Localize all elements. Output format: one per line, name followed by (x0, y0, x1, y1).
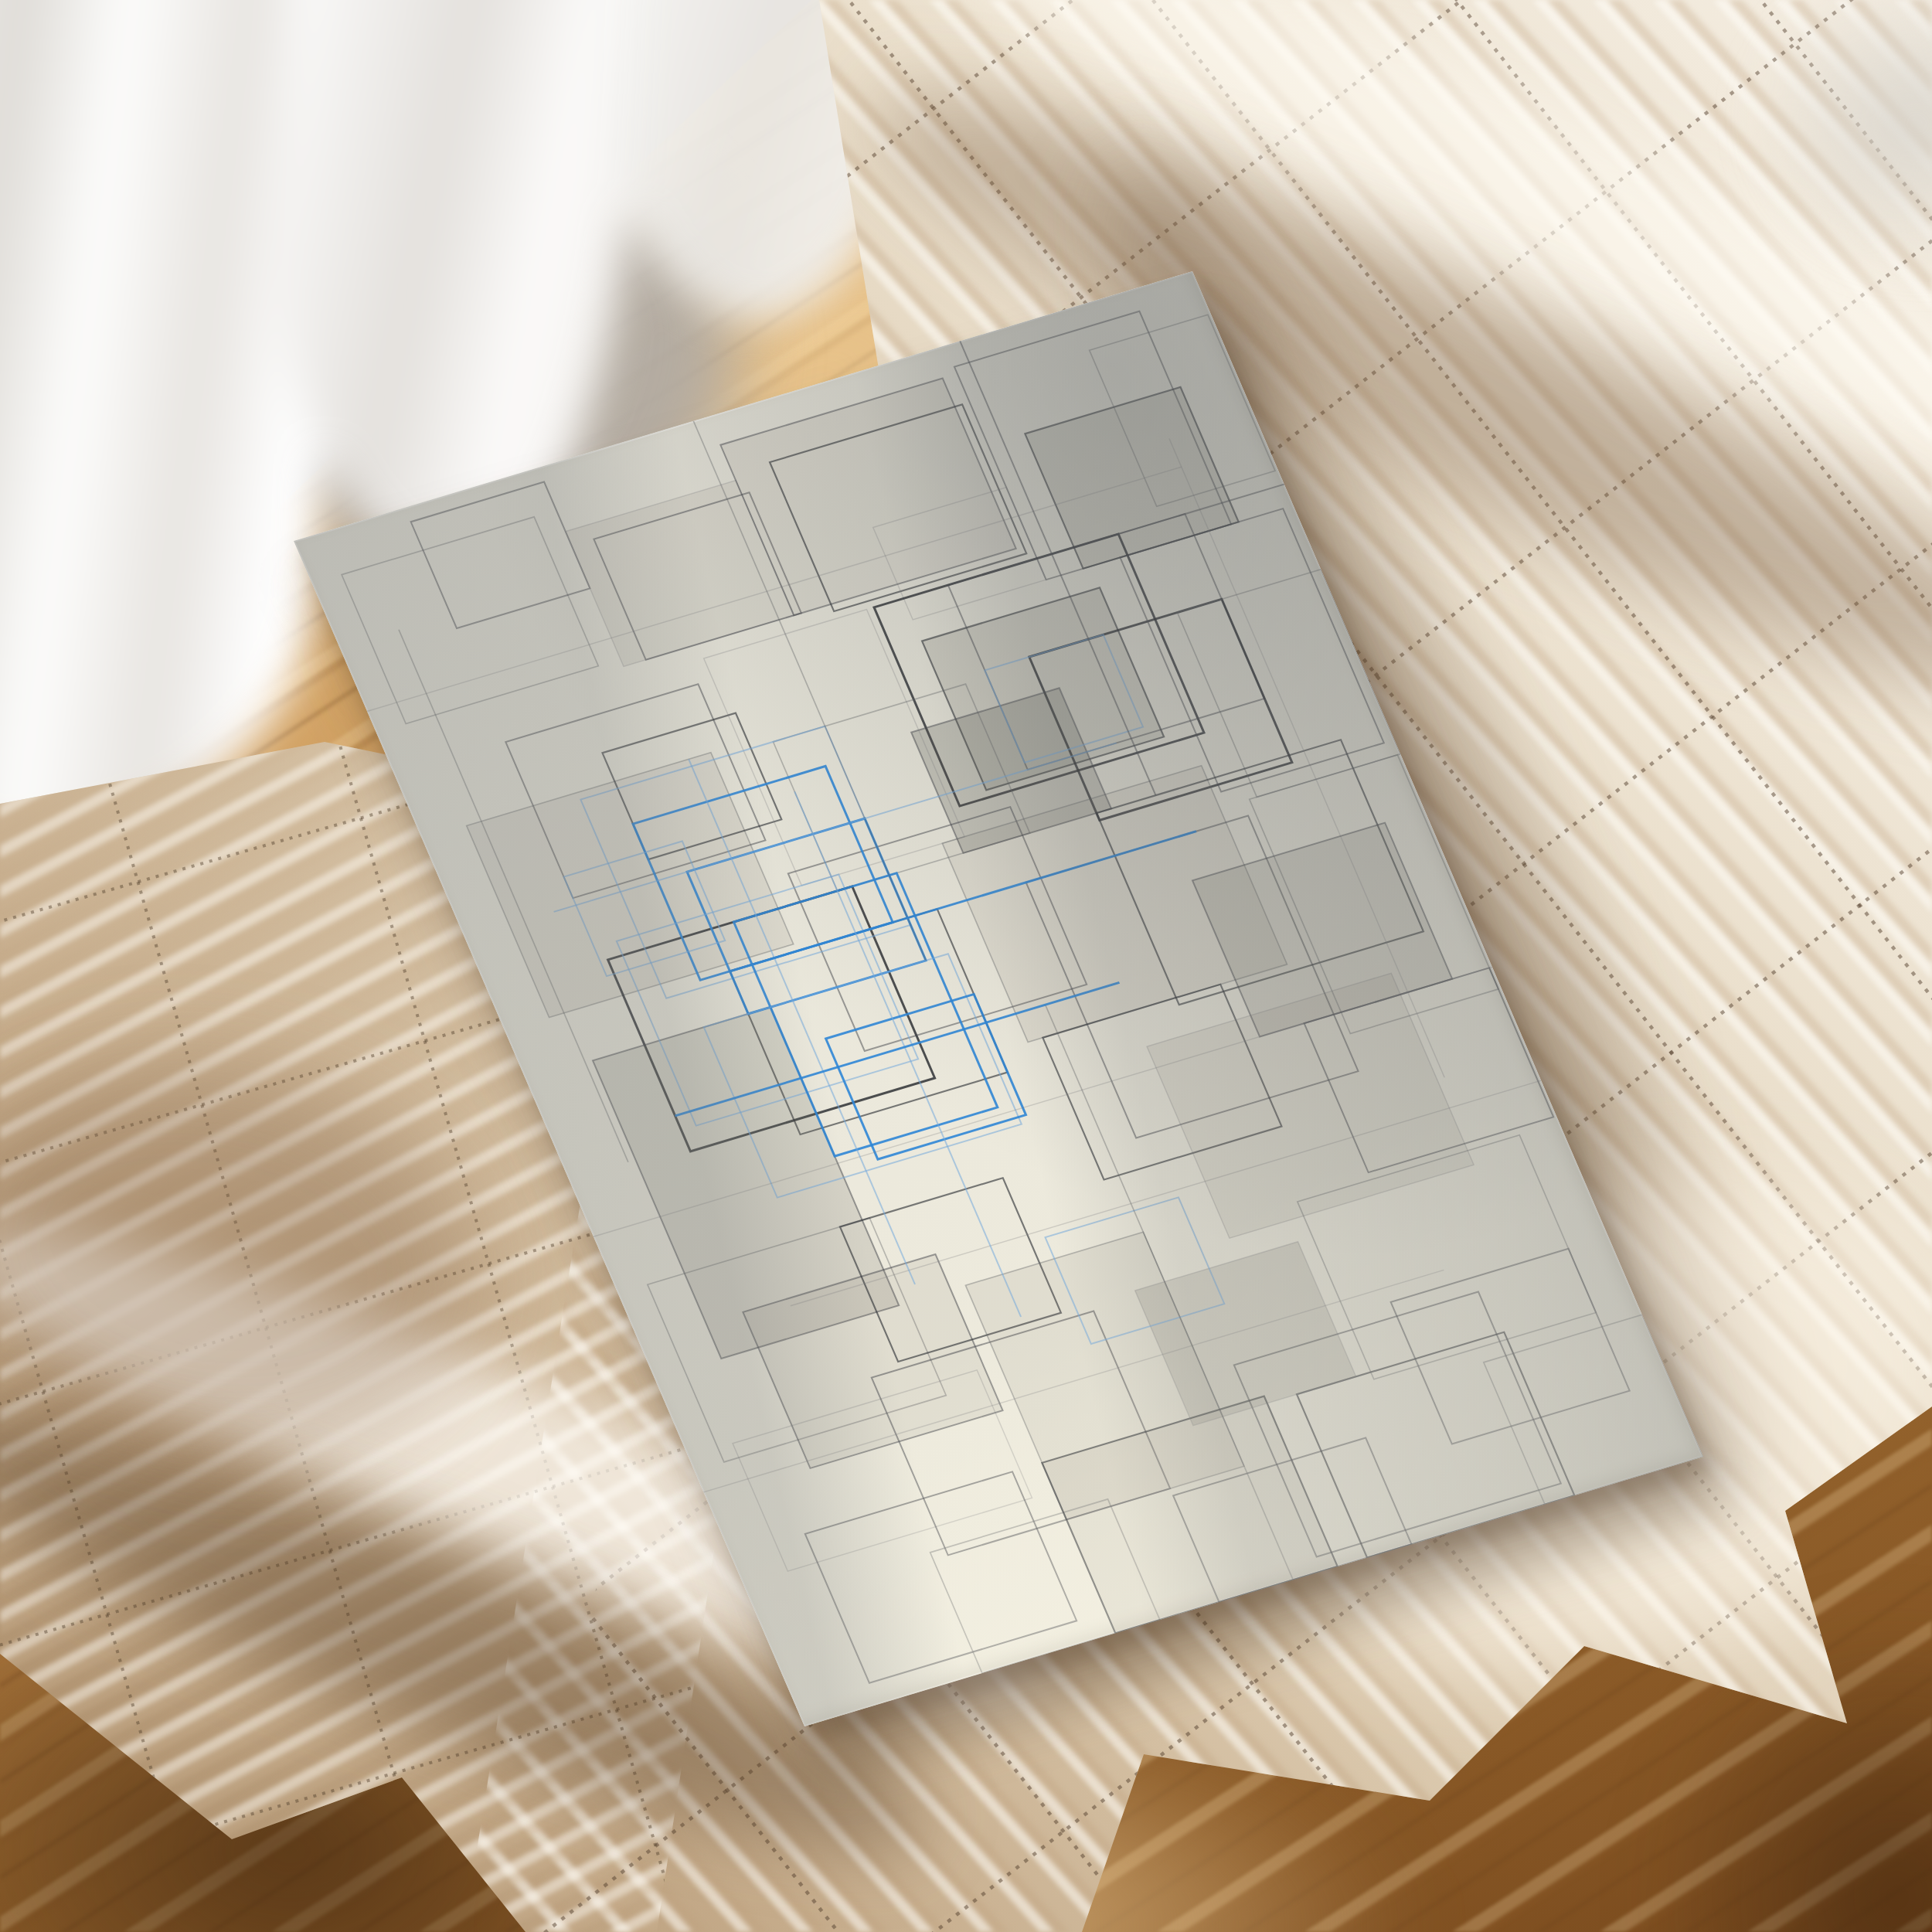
scene-photo (0, 0, 1932, 1932)
